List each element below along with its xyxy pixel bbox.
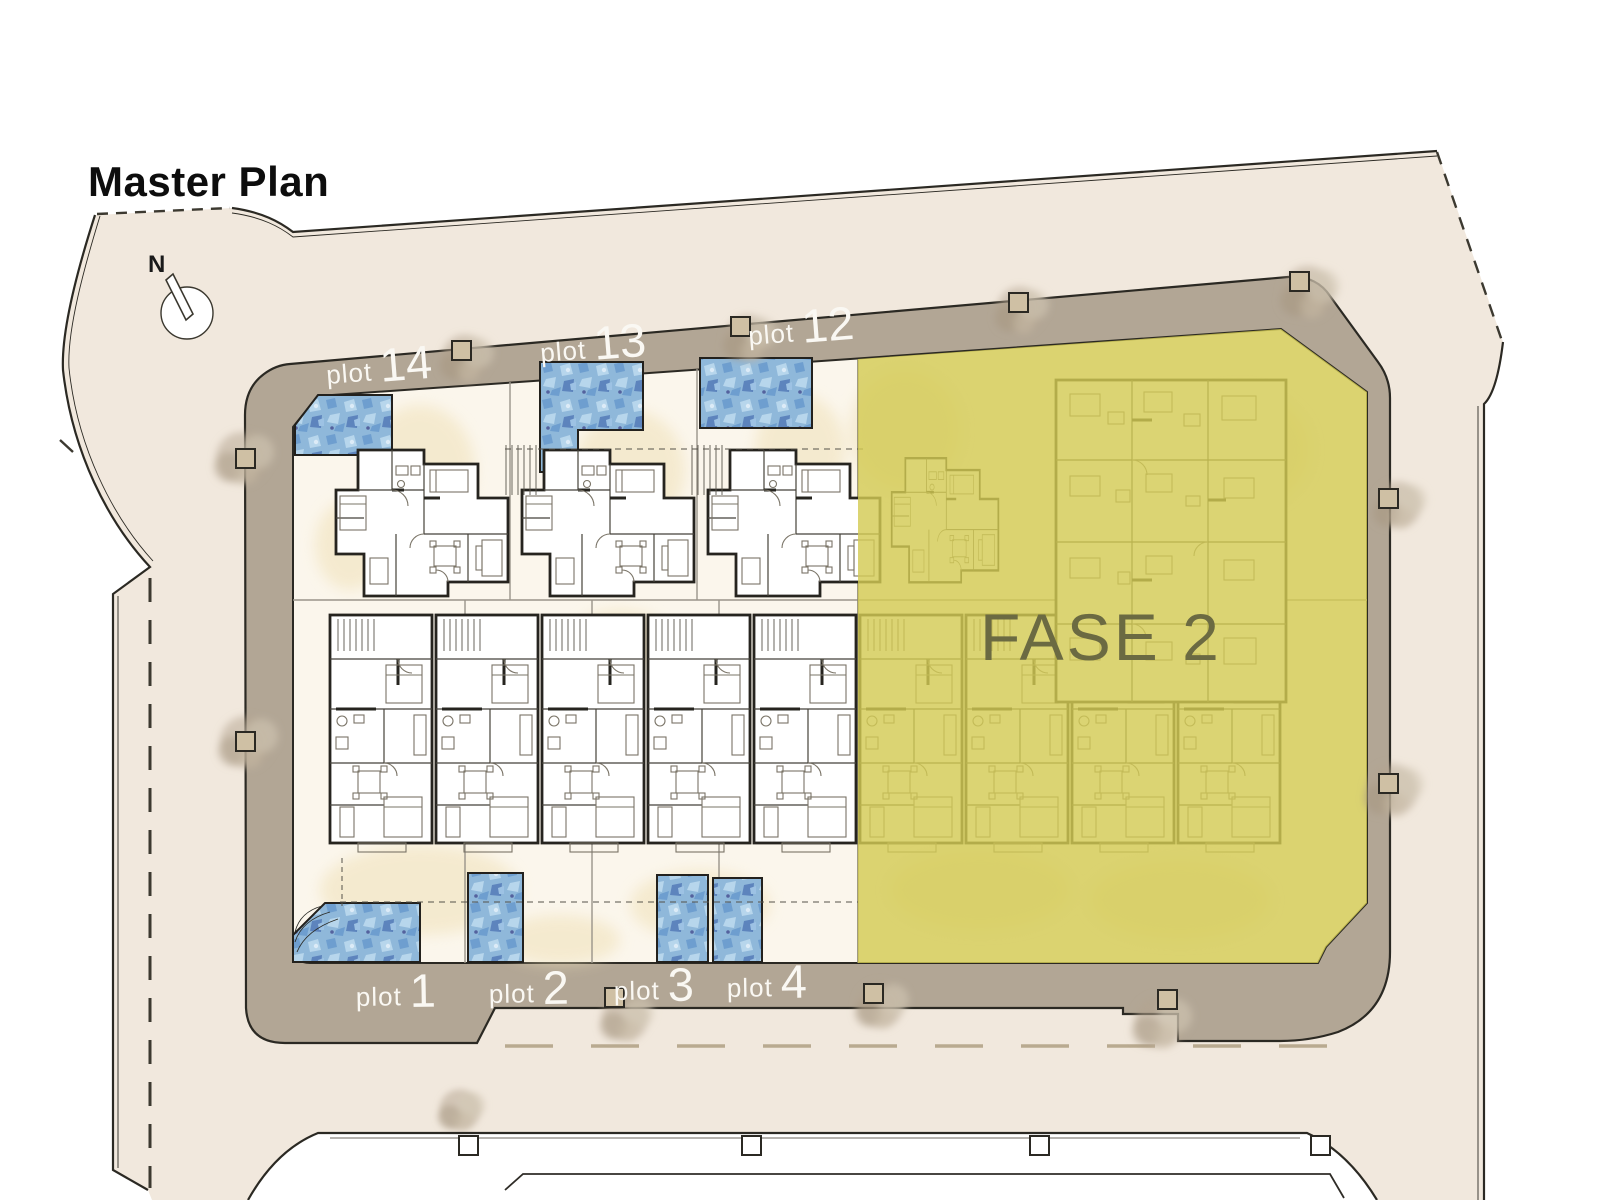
pool-plot-12 [700,358,812,428]
pool-plot-3 [657,875,708,962]
plot-label-word: plot [727,972,773,1003]
lamp-post [236,449,255,468]
plot-label-number: 1 [409,964,436,1017]
lamp-post [459,1136,478,1155]
lamp-post [1379,489,1398,508]
row-unit-5 [754,615,856,852]
lamp-post [452,341,471,360]
row-unit-4 [648,615,750,852]
villas-top-row [336,450,880,596]
lamp-post [1311,1136,1330,1155]
plot-label-number: 4 [780,955,807,1008]
row-unit-1 [330,615,432,852]
lamp-post [1009,293,1028,312]
page-title: Master Plan [88,158,329,205]
lamp-post [236,732,255,751]
lamp-post [864,984,883,1003]
plot-label-word: plot [747,317,795,351]
plot-label-word: plot [614,975,660,1006]
neighbor-boundary [248,1133,1377,1200]
lamp-post [1158,990,1177,1009]
boundary-dash-left-arc [60,440,73,452]
site-plan-drawing: FASE 2 plot 14 plot 13 plo [0,0,1600,1200]
pool-plot-2 [468,873,523,962]
plot-label-word: plot [539,334,587,368]
north-label: N [148,251,165,278]
lamp-post [1030,1136,1049,1155]
pool-plot-4 [713,878,762,962]
plot-label-number: 14 [378,335,434,392]
plot-label-word: plot [489,978,535,1009]
plot-label-number: 12 [800,296,856,353]
road-edge-right [1484,342,1503,1200]
lamp-post [1379,774,1398,793]
lamp-post [742,1136,761,1155]
plot-label-number: 2 [542,961,569,1014]
phase2-label: FASE 2 [980,600,1222,674]
plot-label-number: 3 [667,958,694,1011]
plot-label-word: plot [325,356,373,390]
row-unit-2 [436,615,538,852]
plot-label-number: 13 [592,313,648,370]
row-unit-3 [542,615,644,852]
lamp-post [1290,272,1309,291]
plot-label-word: plot [356,981,402,1012]
master-plan-canvas: FASE 2 plot 14 plot 13 plo [0,0,1600,1200]
